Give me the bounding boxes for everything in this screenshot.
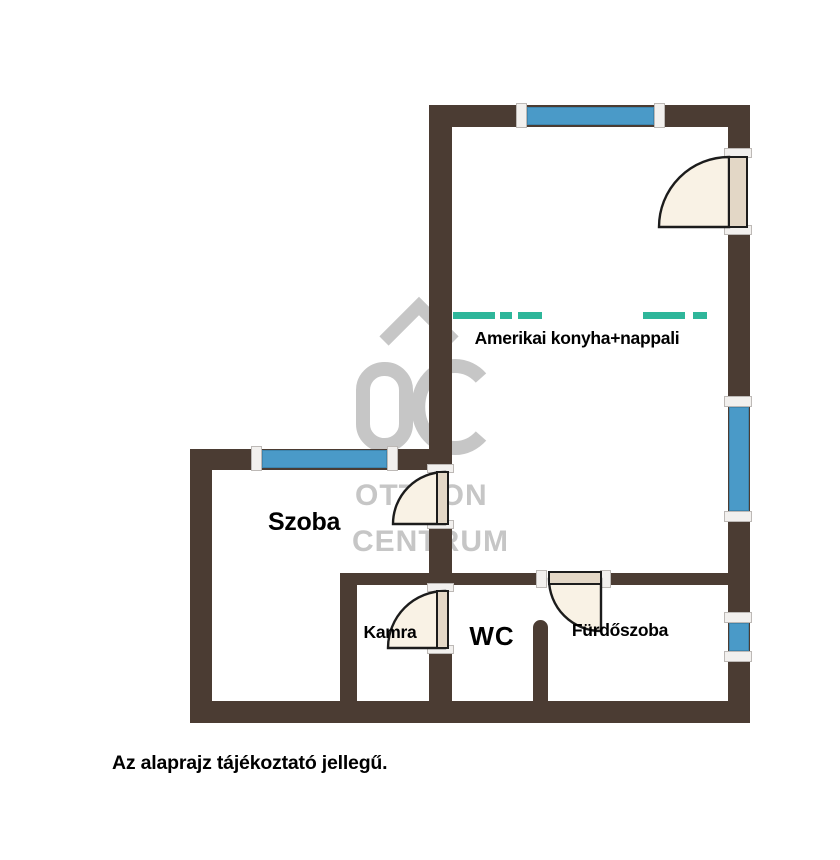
pantry-door [383, 587, 452, 654]
kitchen-divider-dash [643, 312, 685, 319]
window-top [527, 107, 654, 125]
room-label-living-kitchen: Amerikai konyha+nappali [475, 328, 680, 349]
floorplan-canvas: OTTHON CENTRUM [0, 0, 840, 860]
kitchen-divider-dash [518, 312, 542, 319]
window-right-tall [729, 407, 749, 511]
window-jamb [724, 612, 752, 623]
wall-pantry-left [340, 573, 357, 723]
bathroom-door-leaf [549, 572, 601, 584]
window-jamb [724, 651, 752, 662]
kitchen-divider-dash [500, 312, 512, 319]
room-door [388, 468, 452, 530]
window-jamb [724, 396, 752, 407]
room-label-bathroom: Fürdőszoba [572, 620, 668, 641]
window-jamb [251, 446, 262, 471]
room-label-wc: WC [469, 621, 514, 652]
disclaimer-note: Az alaprajz tájékoztató jellegű. [112, 752, 387, 775]
entry-door [655, 150, 755, 235]
room-door-leaf [437, 472, 448, 524]
wall-bottom [190, 701, 750, 723]
wall-main-left [429, 105, 452, 470]
room-label-pantry: Kamra [364, 622, 417, 643]
window-room [262, 450, 387, 468]
room-label-room: Szoba [268, 508, 340, 537]
kitchen-divider-dash [453, 312, 495, 319]
entry-door-arc [659, 157, 729, 227]
window-jamb [516, 103, 527, 128]
wall-room-left [190, 449, 212, 723]
kitchen-divider-dash [693, 312, 707, 319]
otthon-centrum-logo-icon [350, 293, 500, 468]
wall-pantry-wc-lower [429, 648, 452, 723]
window-right-small [729, 623, 749, 651]
pantry-door-leaf [437, 591, 448, 648]
wall-block-top-right [611, 573, 750, 585]
window-jamb [724, 511, 752, 522]
entry-door-leaf [729, 157, 747, 227]
window-jamb [654, 103, 665, 128]
